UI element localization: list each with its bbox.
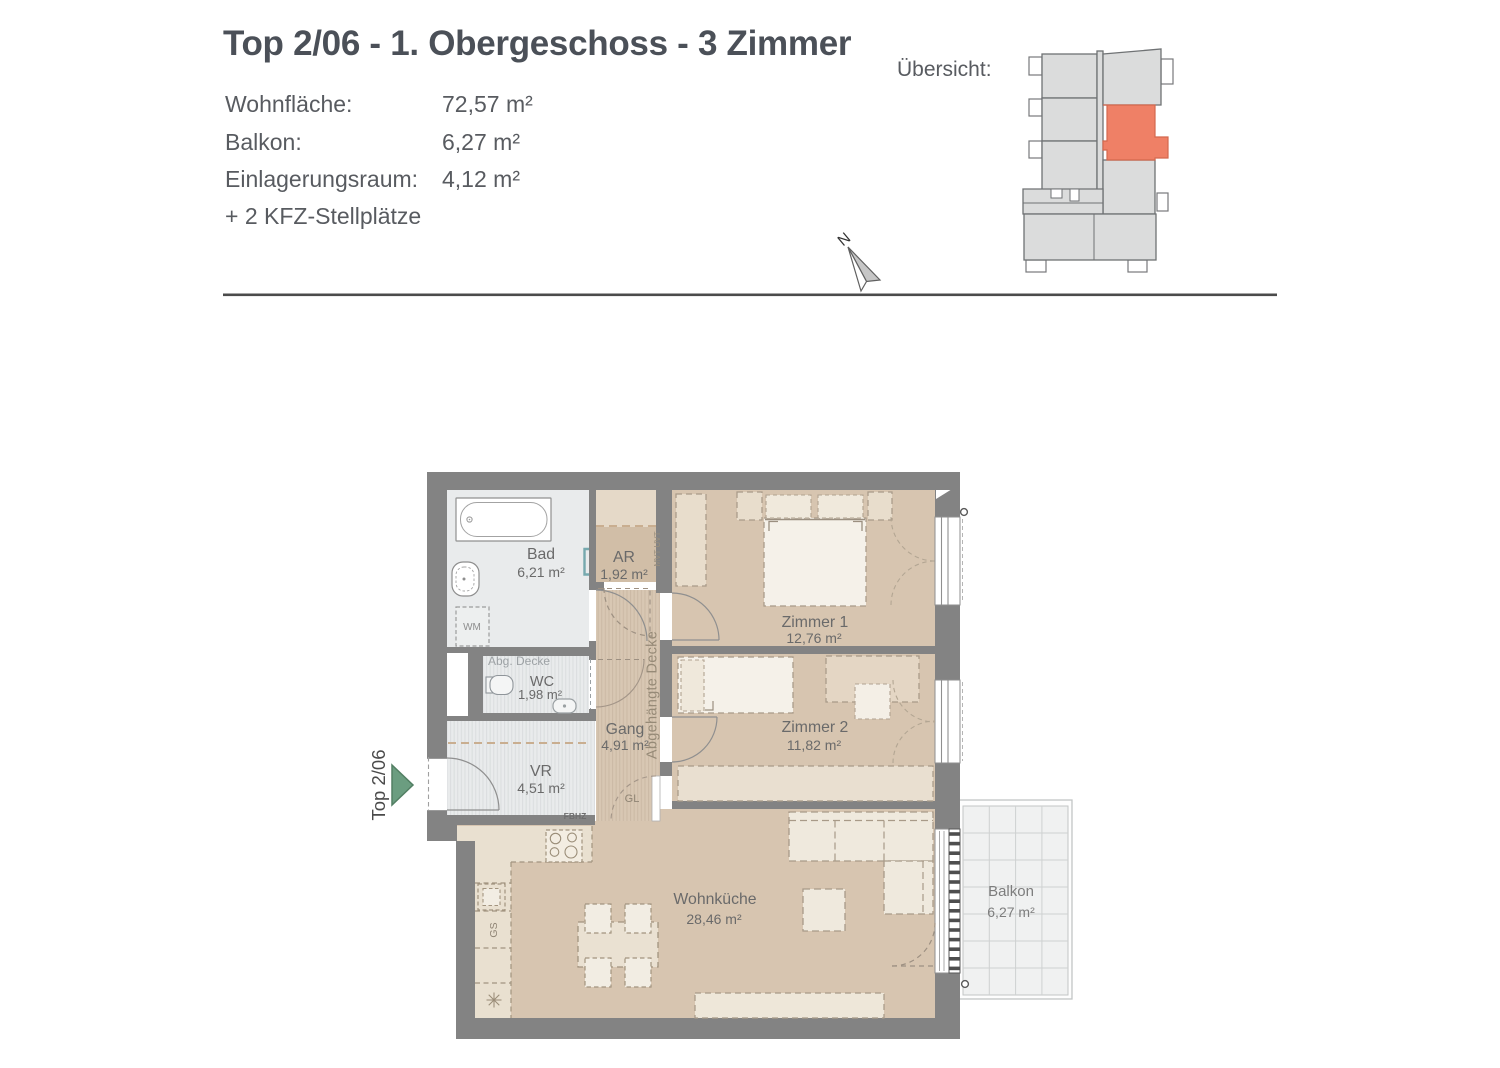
- svg-text:12,76 m²: 12,76 m²: [786, 630, 842, 646]
- svg-text:Abg. Decke: Abg. Decke: [488, 654, 550, 668]
- svg-text:1,98 m²: 1,98 m²: [518, 687, 563, 702]
- svg-text:FBHZ: FBHZ: [564, 811, 587, 821]
- svg-text:Balkon:: Balkon:: [225, 129, 302, 155]
- svg-text:4,91 m²: 4,91 m²: [601, 737, 649, 753]
- svg-text:Bad: Bad: [527, 546, 555, 563]
- svg-text:28,46 m²: 28,46 m²: [686, 911, 742, 927]
- svg-text:Gang: Gang: [606, 721, 645, 738]
- svg-text:Wohnküche: Wohnküche: [673, 891, 756, 908]
- svg-text:Abgehängte Decke: Abgehängte Decke: [645, 631, 661, 759]
- svg-text:Top 2/06 - 1. Obergeschoss - 3: Top 2/06 - 1. Obergeschoss - 3 Zimmer: [223, 24, 852, 63]
- svg-text:VR: VR: [530, 763, 552, 780]
- svg-text:1,92 m²: 1,92 m²: [600, 566, 648, 582]
- svg-text:Übersicht:: Übersicht:: [897, 58, 992, 81]
- svg-text:Zimmer 1: Zimmer 1: [782, 614, 849, 631]
- svg-text:72,57 m²: 72,57 m²: [442, 91, 533, 117]
- svg-text:MVT UVT: MVT UVT: [653, 531, 662, 566]
- svg-text:Balkon: Balkon: [988, 883, 1034, 900]
- svg-text:AR: AR: [613, 549, 635, 566]
- svg-text:Einlagerungsraum:: Einlagerungsraum:: [225, 166, 418, 192]
- svg-text:WM: WM: [463, 622, 481, 633]
- svg-text:6,27 m²: 6,27 m²: [987, 904, 1035, 920]
- svg-text:Wohnfläche:: Wohnfläche:: [225, 91, 352, 117]
- svg-text:GS: GS: [488, 922, 500, 937]
- svg-text:GL: GL: [625, 793, 640, 805]
- svg-text:4,12 m²: 4,12 m²: [442, 166, 520, 192]
- svg-text:+ 2 KFZ-Stellplätze: + 2 KFZ-Stellplätze: [225, 203, 421, 229]
- svg-text:N: N: [835, 230, 855, 250]
- svg-text:11,82 m²: 11,82 m²: [787, 737, 842, 753]
- svg-text:Zimmer 2: Zimmer 2: [782, 719, 849, 736]
- svg-text:6,27 m²: 6,27 m²: [442, 129, 520, 155]
- svg-text:Top 2/06: Top 2/06: [368, 750, 389, 821]
- svg-text:6,21 m²: 6,21 m²: [517, 564, 565, 580]
- svg-text:4,51 m²: 4,51 m²: [517, 780, 565, 796]
